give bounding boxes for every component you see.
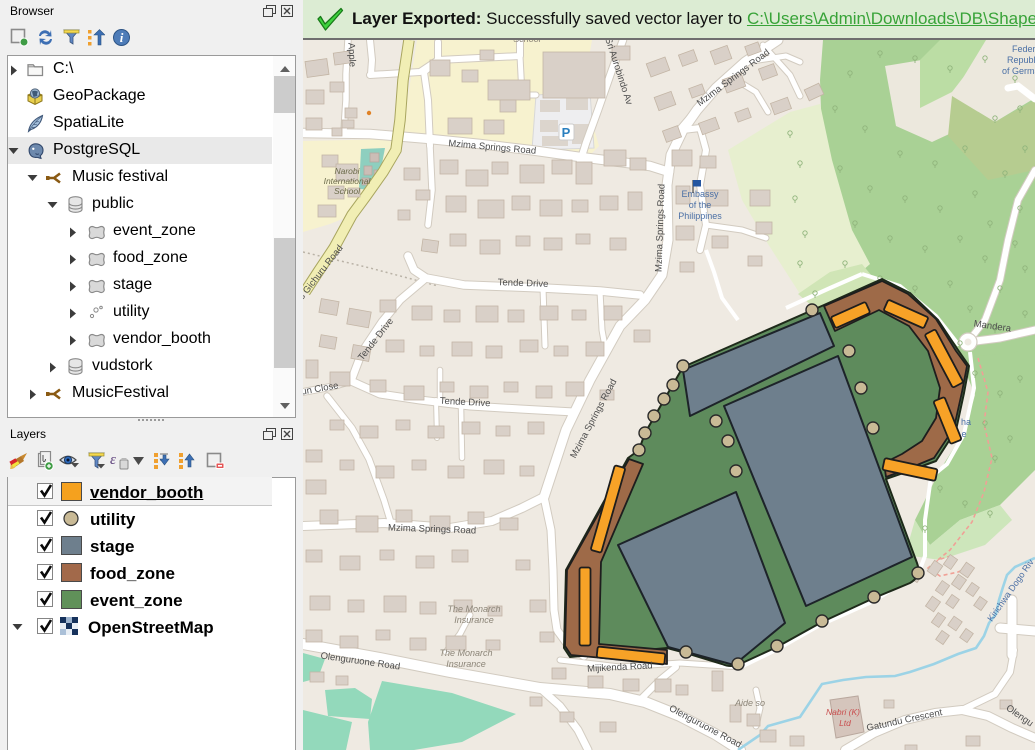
svg-text:International: International — [324, 176, 372, 186]
svg-text:Nabri (K): Nabri (K) — [826, 707, 860, 717]
svg-text:Narobi: Narobi — [334, 166, 360, 176]
svg-text:P: P — [562, 125, 571, 140]
svg-text:Republic: Republic — [1007, 55, 1035, 65]
svg-text:Insurance: Insurance — [454, 615, 494, 625]
svg-text:Aide so: Aide so — [734, 698, 765, 708]
svg-text:Philippines: Philippines — [678, 211, 722, 221]
svg-text:Insurance: Insurance — [446, 659, 486, 669]
svg-text:of Germany: of Germany — [1002, 66, 1035, 76]
svg-text:of the: of the — [689, 200, 712, 210]
svg-text:Tende Drive: Tende Drive — [498, 277, 549, 290]
svg-text:ha: ha — [961, 417, 971, 427]
svg-text:School: School — [334, 186, 361, 196]
svg-text:The Monarch: The Monarch — [447, 604, 500, 614]
svg-text:Apple: Apple — [345, 42, 357, 67]
svg-text:Embassy: Embassy — [681, 189, 719, 199]
svg-text:i: i — [120, 30, 124, 45]
svg-text:ε: ε — [110, 452, 116, 468]
svg-text:e: e — [961, 429, 966, 439]
svg-text:Ltd: Ltd — [839, 718, 851, 728]
svg-text:The Monarch: The Monarch — [439, 648, 492, 658]
svg-text:Federal: Federal — [1012, 44, 1035, 54]
